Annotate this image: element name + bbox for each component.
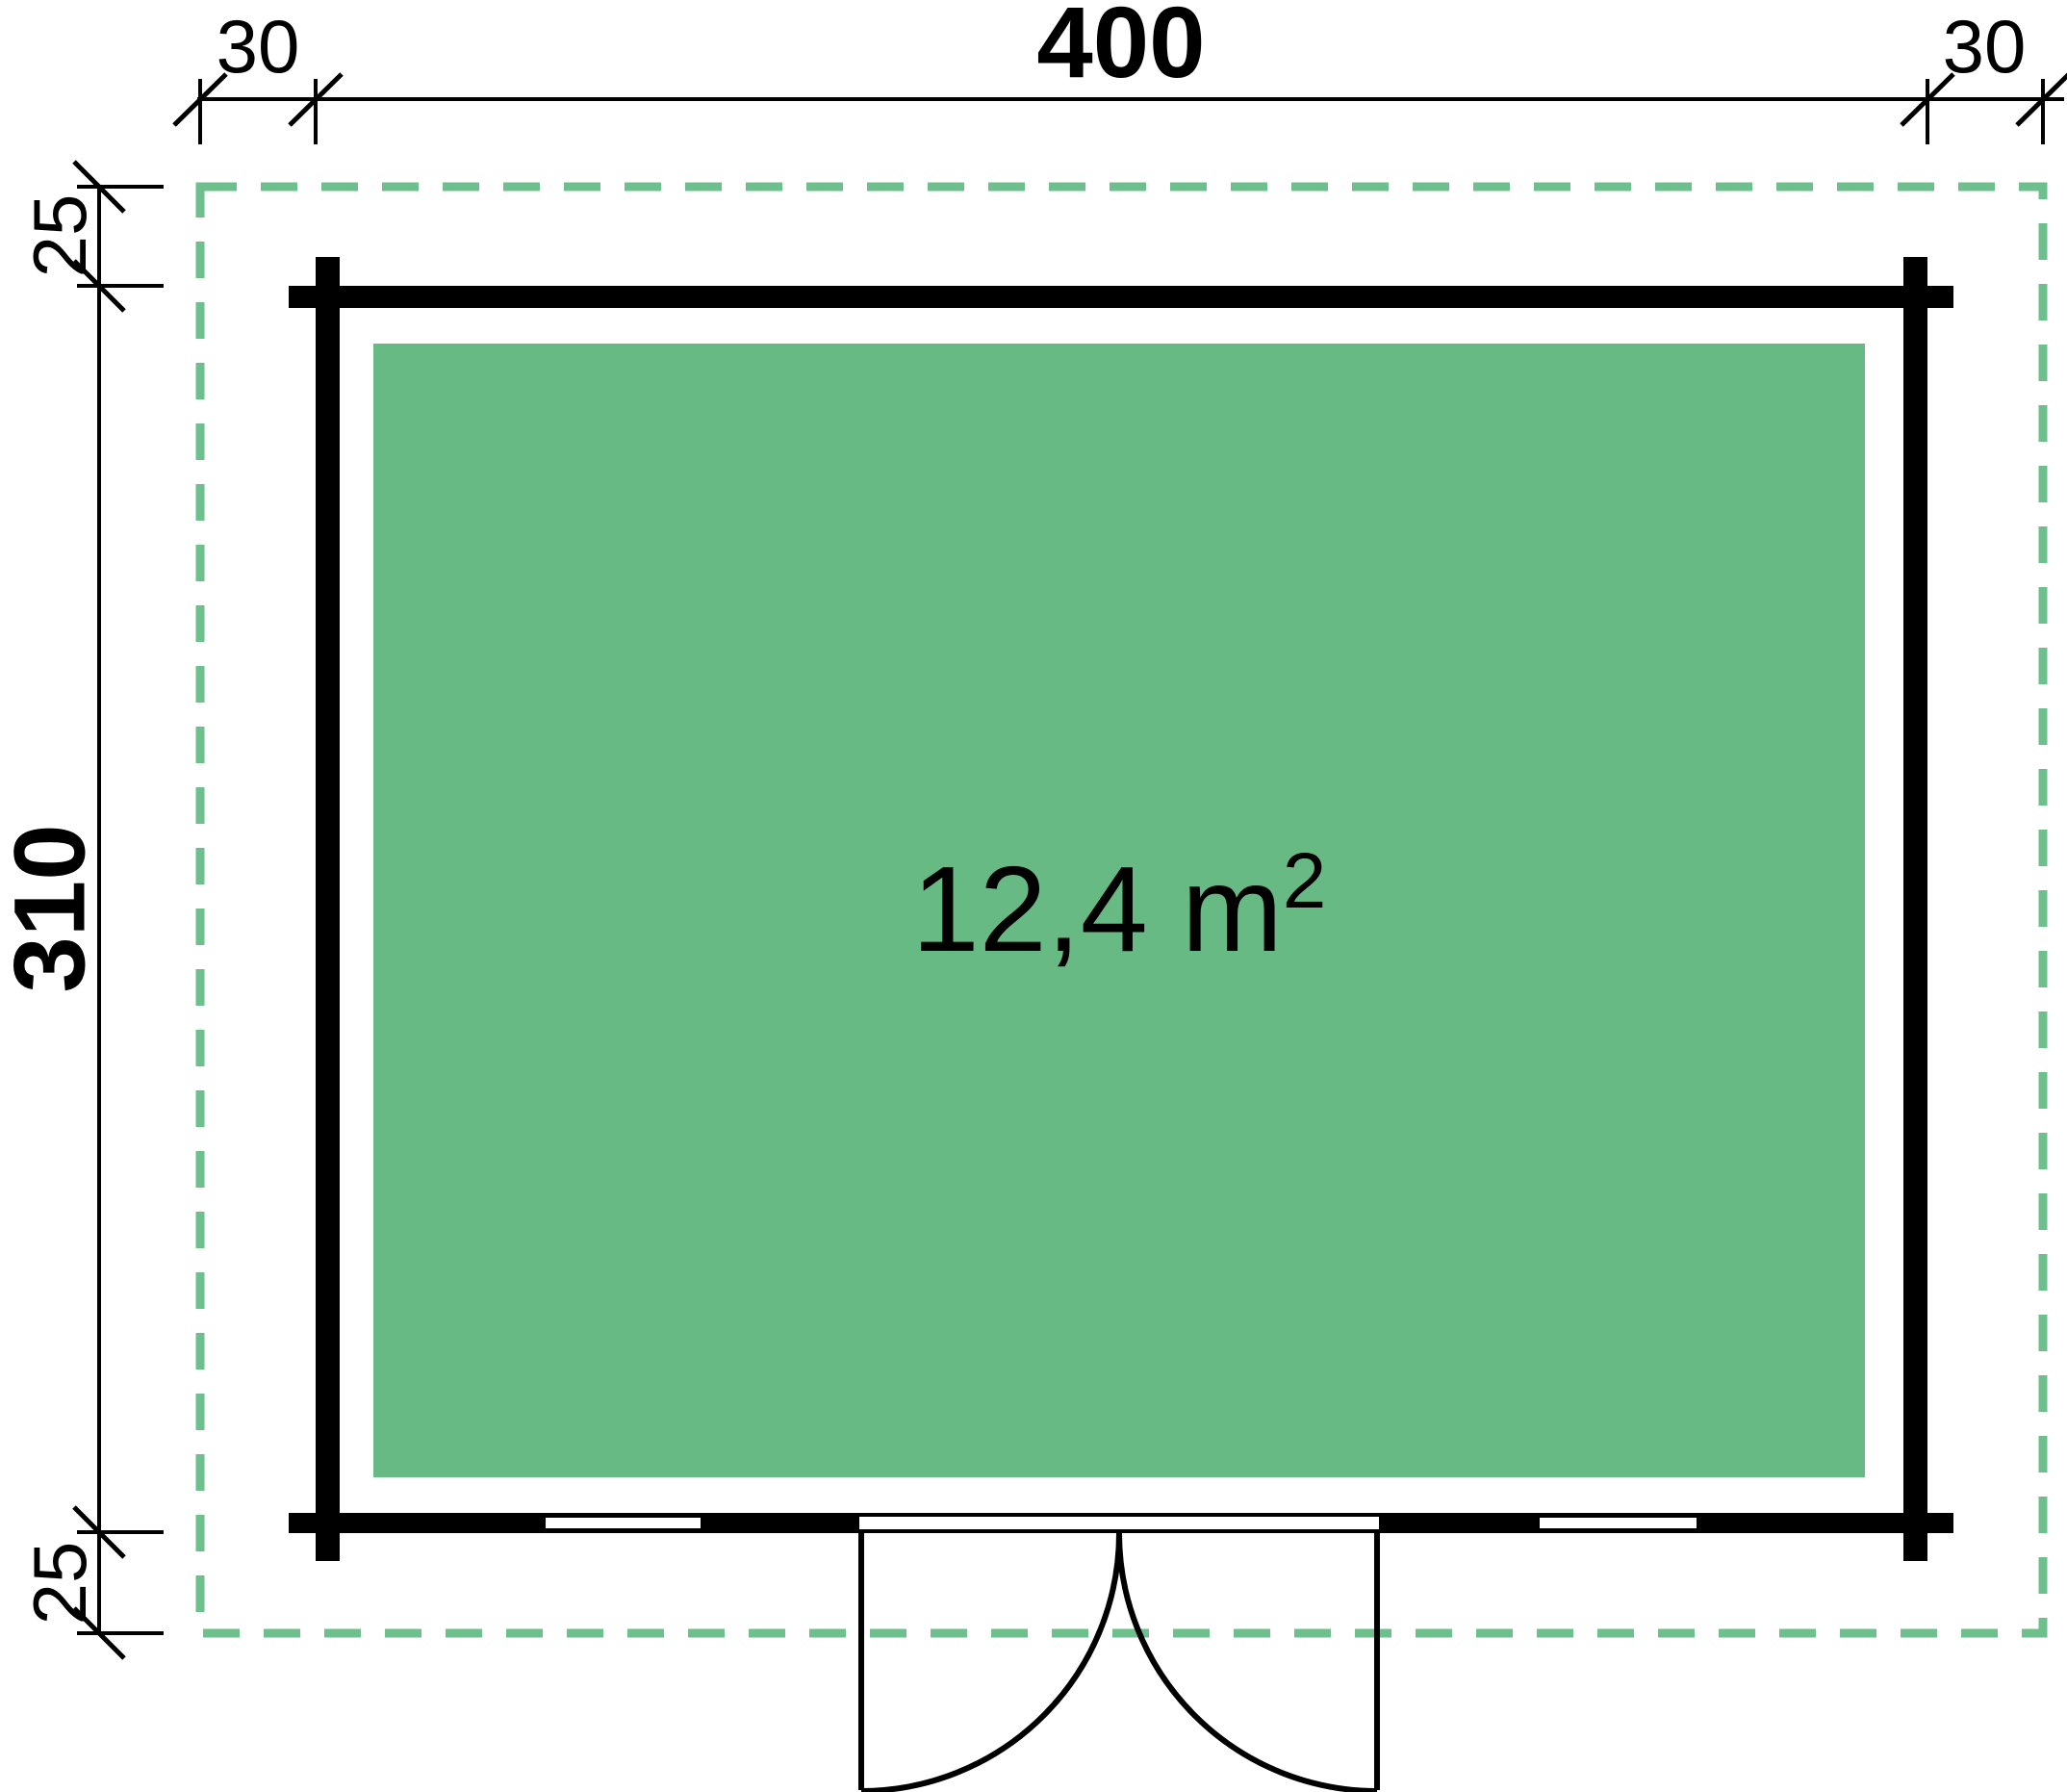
dim-label-overhang-right: 30 xyxy=(1943,4,2027,89)
dim-label-overhang-left: 30 xyxy=(217,4,300,89)
dim-label-height: 310 xyxy=(0,824,107,992)
door-swing-arc-right xyxy=(1119,1533,1377,1791)
wall-right xyxy=(1903,257,1927,1561)
dim-label-width: 400 xyxy=(1036,0,1205,99)
floor-area-label: 12,4 m2 xyxy=(912,837,1327,977)
floor-plan-canvas: 30 400 30 25 310 25 12,4 m2 xyxy=(0,0,2067,1792)
dim-label-overhang-bottom: 25 xyxy=(17,1542,102,1626)
wall-left xyxy=(316,257,340,1561)
floor-plan-page: 30 400 30 25 310 25 12,4 m2 xyxy=(0,0,2067,1792)
floor-area-value: 12,4 m xyxy=(912,841,1283,977)
double-door xyxy=(861,1533,1377,1791)
window-slot-left xyxy=(546,1518,701,1528)
door-swing-arc-left xyxy=(861,1533,1119,1791)
window-slot-right xyxy=(1540,1518,1697,1528)
floor-area-exponent: 2 xyxy=(1283,837,1327,925)
dim-label-overhang-top: 25 xyxy=(17,194,102,278)
wall-top xyxy=(289,286,1953,308)
door-opening xyxy=(859,1517,1379,1529)
